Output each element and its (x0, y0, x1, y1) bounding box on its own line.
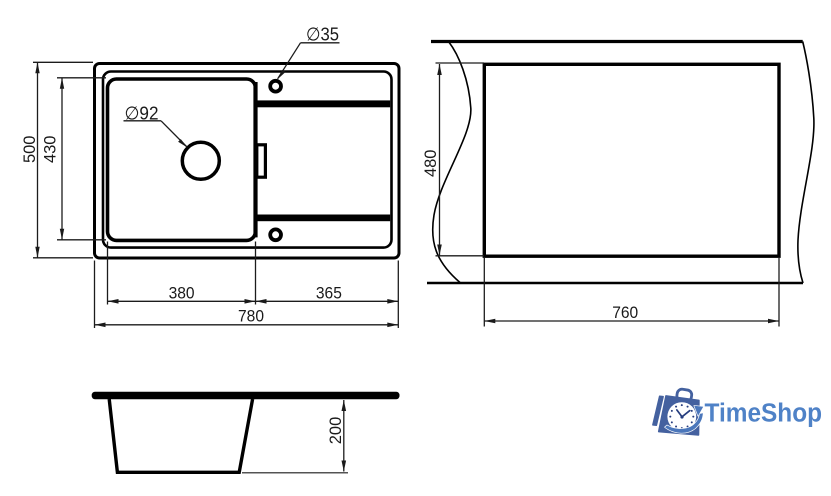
svg-text:365: 365 (316, 285, 342, 303)
svg-text:480: 480 (422, 150, 440, 178)
svg-text:430: 430 (41, 136, 59, 164)
svg-text:200: 200 (327, 417, 345, 445)
svg-text:500: 500 (21, 136, 39, 164)
svg-text:380: 380 (169, 285, 195, 303)
svg-text:780: 780 (238, 307, 264, 325)
svg-text:∅35: ∅35 (306, 23, 339, 44)
svg-text:TimeShop: TimeShop (705, 400, 823, 428)
svg-text:760: 760 (612, 304, 638, 322)
